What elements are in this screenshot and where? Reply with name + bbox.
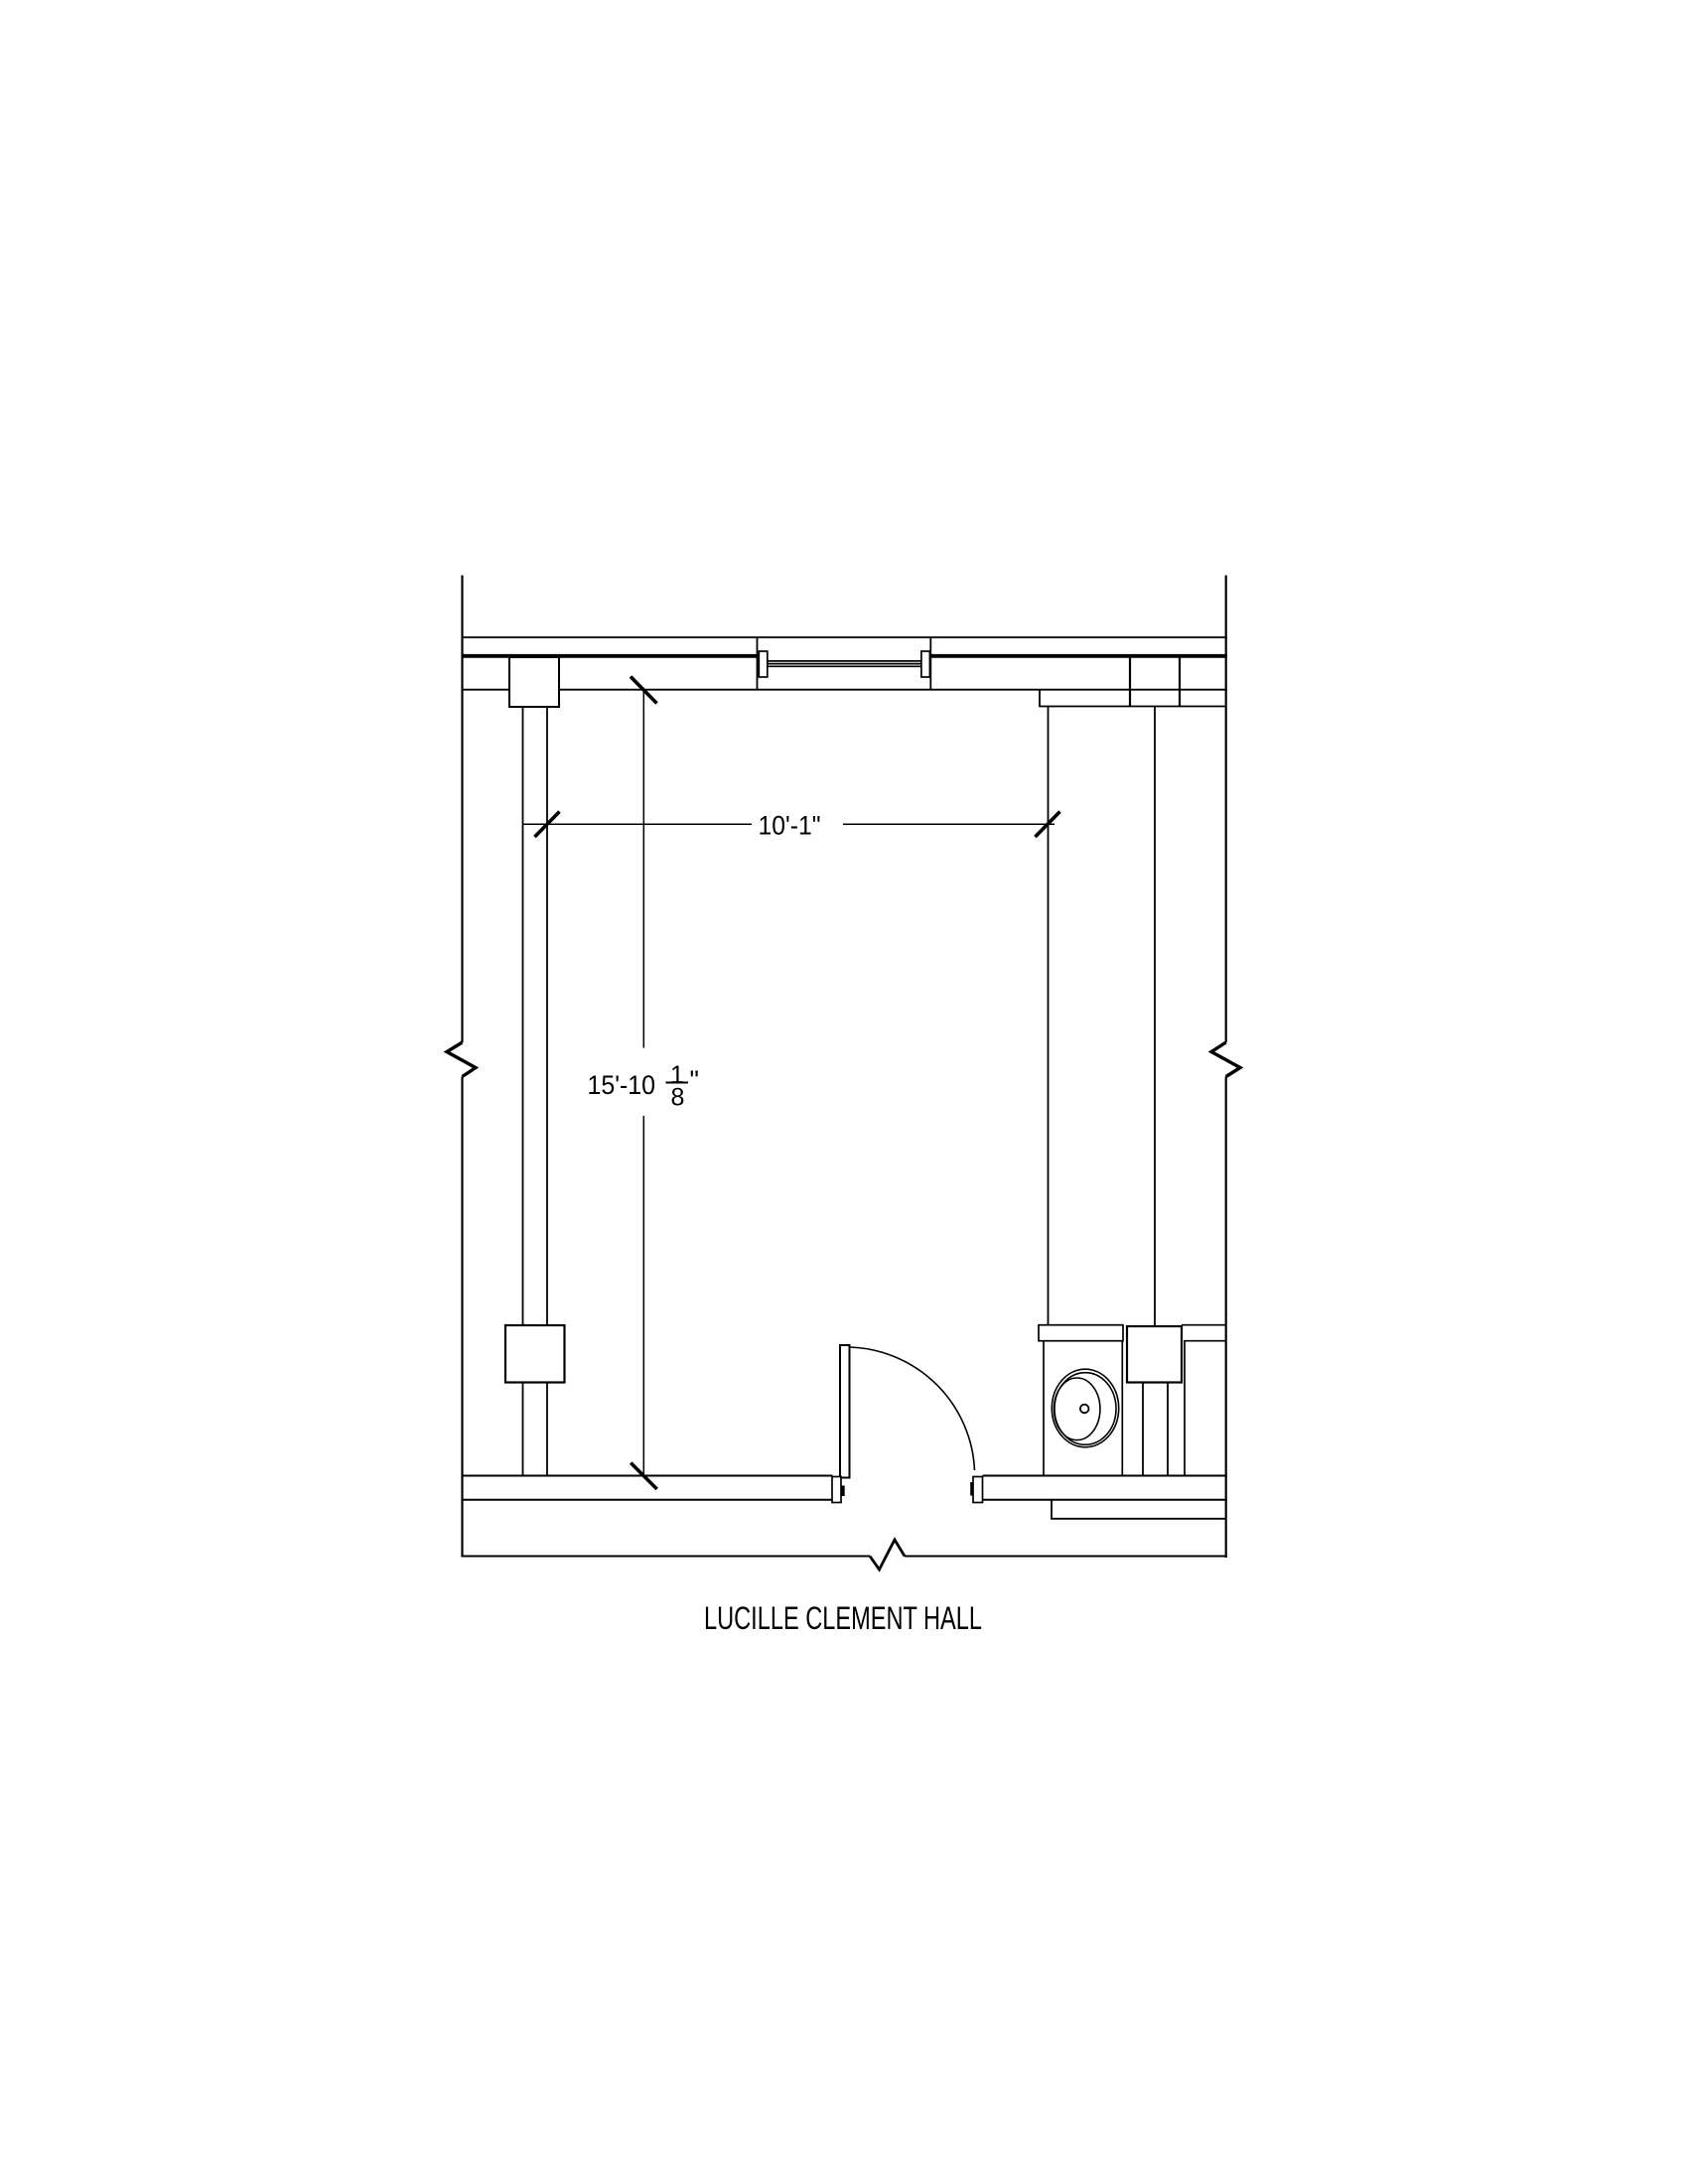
svg-text:8: 8 [671,1084,685,1112]
svg-text:15'-10: 15'-10 [588,1070,656,1100]
svg-text:": " [690,1065,699,1095]
svg-text:LUCILLE CLEMENT HALL: LUCILLE CLEMENT HALL [704,1600,982,1636]
svg-text:10'-1": 10'-1" [759,811,821,841]
